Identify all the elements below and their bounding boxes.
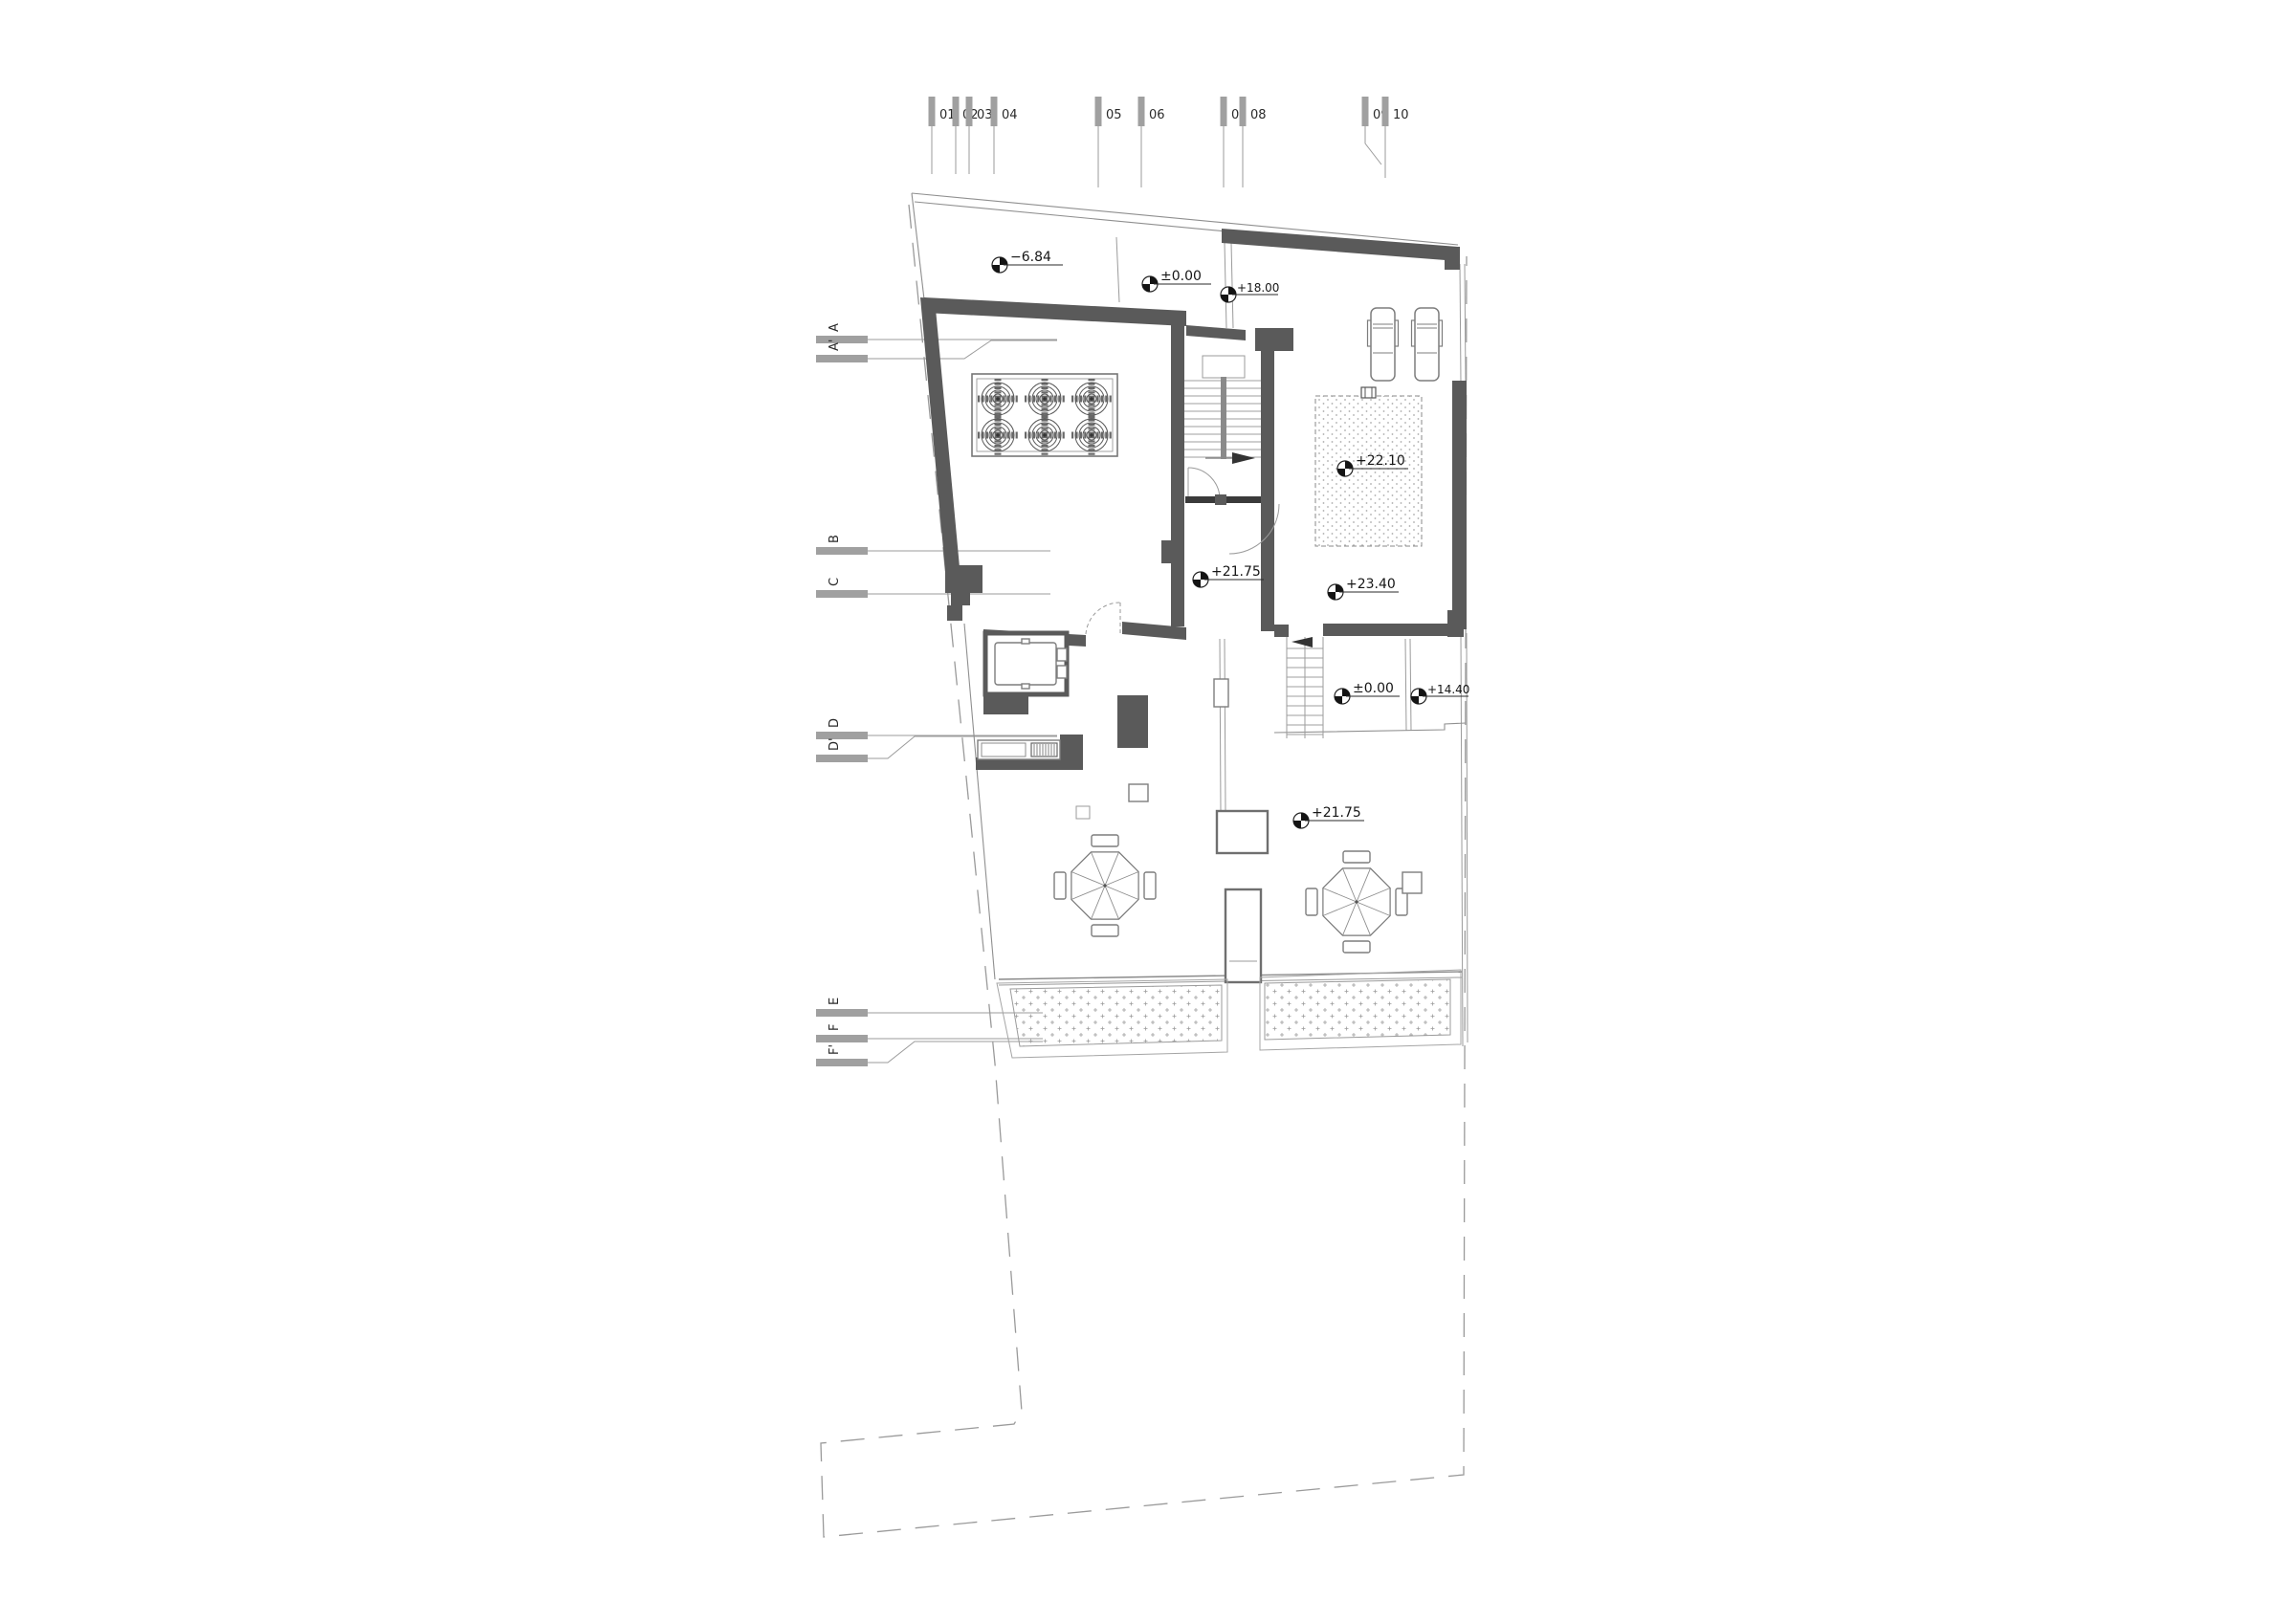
floor-plan-canvas: 01 02 03 04 05 06 07 bbox=[0, 0, 2296, 1623]
wall-step bbox=[947, 605, 962, 621]
wall-corner bbox=[1447, 610, 1464, 637]
section-label: C bbox=[828, 578, 842, 586]
planter-tall bbox=[1225, 889, 1261, 982]
wall-pier bbox=[1161, 540, 1184, 563]
elevation-value: +14.40 bbox=[1427, 683, 1469, 696]
section-bar bbox=[816, 336, 868, 343]
planter-box bbox=[1402, 872, 1422, 893]
sun-lounger bbox=[1368, 308, 1399, 381]
wall-step bbox=[951, 593, 970, 605]
planter-upper bbox=[1217, 811, 1268, 853]
tub-room-door bbox=[1057, 666, 1067, 678]
elevation-value: +18.00 bbox=[1237, 281, 1279, 295]
elevation-marker-entry-court: −6.84 bbox=[992, 250, 1063, 273]
section-marker-f-prime: F' bbox=[816, 1042, 1043, 1066]
planting-strip bbox=[1010, 985, 1222, 1046]
wall-block bbox=[1060, 735, 1083, 770]
stair-stringer bbox=[1221, 377, 1226, 459]
ac-unit-enclosure bbox=[972, 374, 1117, 456]
grid-bar bbox=[1221, 97, 1227, 126]
grill bbox=[1031, 743, 1057, 757]
section-marker-b: B bbox=[816, 535, 1050, 555]
roof-terrace bbox=[997, 639, 1461, 1058]
floor-plan-page: 01 02 03 04 05 06 07 bbox=[0, 0, 2296, 1623]
grid-column-06: 06 bbox=[1138, 97, 1165, 187]
grid-column-08: 08 bbox=[1240, 97, 1267, 187]
grid-label: 04 bbox=[1002, 108, 1018, 122]
grid-bar bbox=[953, 97, 960, 126]
grid-bar bbox=[991, 97, 998, 126]
elevation-marker-landing: ±0.00 bbox=[1335, 681, 1400, 704]
section-label: F' bbox=[828, 1044, 842, 1055]
wall-garage-south bbox=[1274, 625, 1289, 637]
elevation-marker-roof-hall: +21.75 bbox=[1193, 564, 1264, 587]
wall-top-strip bbox=[924, 297, 1186, 326]
floor-box-small bbox=[1076, 806, 1090, 819]
section-bar bbox=[816, 547, 868, 555]
section-bar bbox=[816, 755, 868, 762]
elevation-marker-terrace: +21.75 bbox=[1293, 805, 1364, 828]
grid-column-03: 03 bbox=[966, 97, 993, 174]
grid-label: 10 bbox=[1393, 108, 1409, 122]
section-label: D bbox=[828, 718, 842, 728]
elevation-value: ±0.00 bbox=[1353, 681, 1394, 696]
kitchen-counter bbox=[978, 740, 1060, 759]
section-bar bbox=[816, 1009, 868, 1017]
wall-stair-west bbox=[1171, 311, 1184, 626]
elevation-value: −6.84 bbox=[1010, 250, 1051, 265]
grid-bar bbox=[966, 97, 973, 126]
elevation-marker-entry: ±0.00 bbox=[1142, 269, 1211, 292]
grid-column-05: 05 bbox=[1095, 97, 1122, 187]
wall-garage-south bbox=[1323, 624, 1449, 636]
bathtub bbox=[995, 643, 1056, 685]
door-dashed bbox=[1086, 603, 1120, 635]
section-label: F bbox=[828, 1024, 842, 1031]
grid-label: 06 bbox=[1149, 108, 1165, 122]
wall-corner bbox=[1445, 247, 1460, 270]
section-marker-e: E bbox=[816, 998, 1043, 1017]
pool-deck bbox=[1315, 308, 1443, 546]
chimney-shaft bbox=[1117, 695, 1148, 748]
section-bar bbox=[816, 732, 868, 739]
grid-bar bbox=[1138, 97, 1145, 126]
stair-direction-arrow bbox=[1232, 452, 1255, 464]
grid-column-04: 04 bbox=[991, 97, 1018, 174]
staircase-lower bbox=[1287, 637, 1323, 738]
sun-lounger bbox=[1412, 308, 1443, 381]
elevation-value: +21.75 bbox=[1211, 564, 1261, 580]
section-bar bbox=[816, 355, 868, 362]
section-label: E bbox=[828, 998, 842, 1005]
section-label: D' bbox=[828, 737, 842, 751]
planter-small bbox=[1214, 679, 1228, 707]
pool-ladder-icon bbox=[1361, 387, 1376, 398]
grid-label: 05 bbox=[1106, 108, 1122, 122]
tub-room bbox=[985, 633, 1067, 694]
grid-columns: 01 02 03 04 05 06 07 bbox=[929, 97, 1409, 187]
grid-label: 03 bbox=[977, 108, 993, 122]
grid-bar bbox=[1095, 97, 1102, 126]
grid-bar bbox=[1382, 97, 1389, 126]
planting-strip bbox=[1265, 979, 1450, 1040]
section-bar bbox=[816, 590, 868, 598]
wall-step bbox=[945, 565, 982, 593]
grid-column-01: 01 bbox=[929, 97, 956, 174]
section-label: A' bbox=[828, 340, 842, 351]
door-hinge-block bbox=[1215, 494, 1226, 505]
section-bar bbox=[816, 1059, 868, 1066]
wall-left-sloped bbox=[920, 297, 960, 570]
grid-column-02: 02 bbox=[953, 97, 979, 174]
patio-umbrella-table bbox=[1306, 851, 1407, 953]
stair-direction-arrow bbox=[1291, 637, 1313, 647]
floor-box bbox=[1129, 784, 1148, 801]
section-marker-c: C bbox=[816, 578, 1050, 598]
elevation-value: +23.40 bbox=[1346, 577, 1396, 592]
elevation-marker-side-strip: +18.00 bbox=[1221, 281, 1279, 302]
grid-bar bbox=[929, 97, 936, 126]
grid-label: 08 bbox=[1250, 108, 1267, 122]
section-label: A bbox=[828, 323, 842, 332]
elevation-value: +22.10 bbox=[1356, 453, 1405, 469]
grid-column-10: 10 bbox=[1382, 97, 1409, 178]
wall-garage-west bbox=[1261, 330, 1274, 631]
elevation-value: +21.75 bbox=[1312, 805, 1361, 821]
tub-room-door bbox=[1057, 648, 1067, 661]
grid-bar bbox=[1240, 97, 1247, 126]
grid-bar bbox=[1362, 97, 1369, 126]
sink bbox=[982, 743, 1026, 757]
section-bar bbox=[816, 1035, 868, 1042]
patio-umbrella-table bbox=[1054, 835, 1156, 936]
elevation-marker-pool-deck: +23.40 bbox=[1328, 577, 1399, 600]
elevation-value: ±0.00 bbox=[1160, 269, 1202, 284]
wall-garage-east bbox=[1452, 381, 1467, 629]
wall-stairhall-north bbox=[1186, 325, 1246, 340]
section-label: B bbox=[828, 535, 842, 543]
